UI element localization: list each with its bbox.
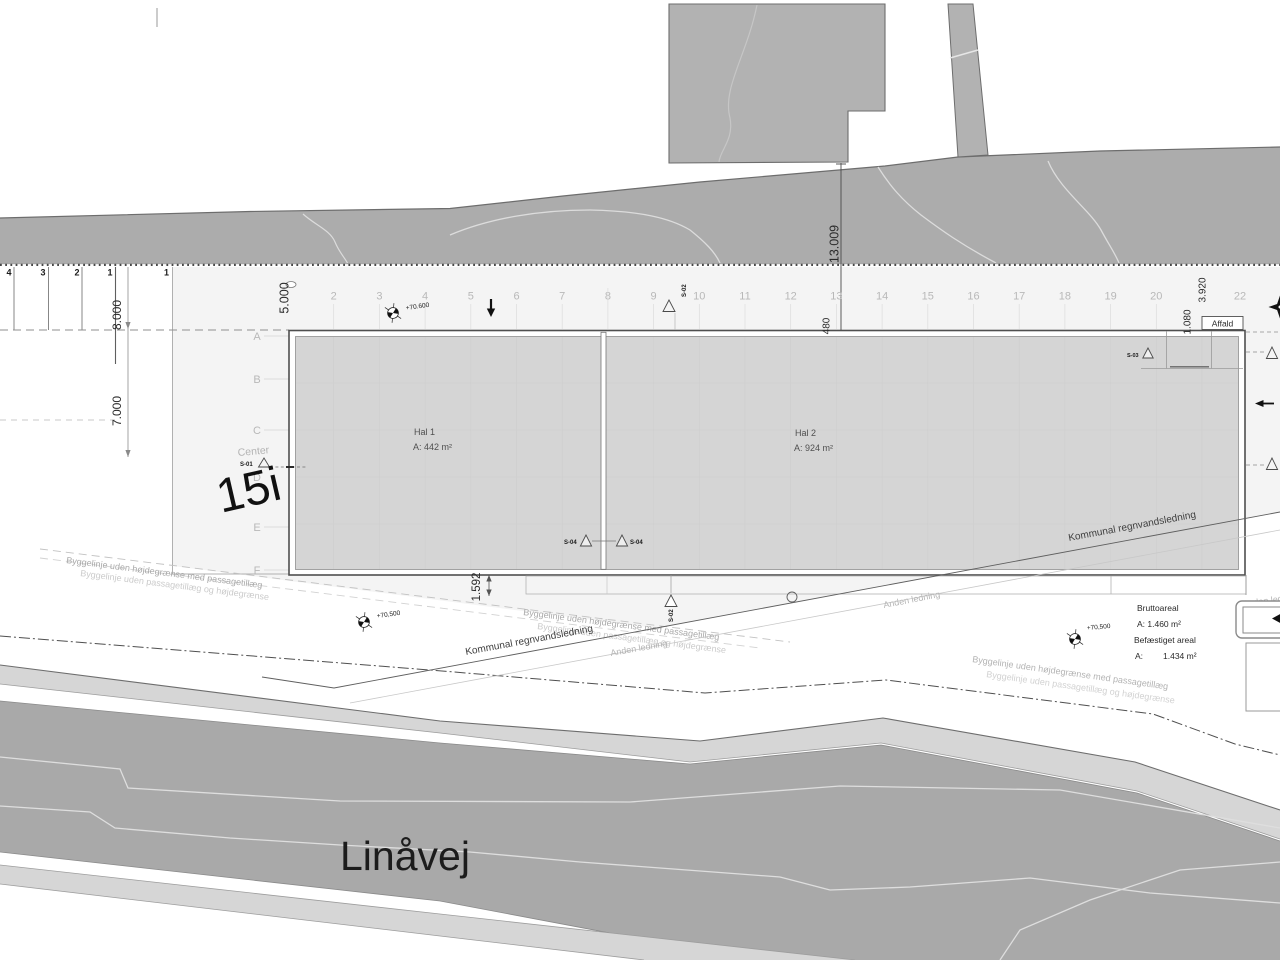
svg-text:15: 15: [922, 291, 934, 303]
svg-text:Befæstiget areal: Befæstiget areal: [1134, 635, 1196, 645]
svg-text:18: 18: [1059, 291, 1071, 303]
svg-text:8.000: 8.000: [110, 300, 124, 330]
svg-text:10: 10: [693, 291, 705, 303]
svg-text:11: 11: [739, 291, 750, 303]
svg-text:S-04: S-04: [564, 540, 577, 546]
svg-text:13: 13: [830, 291, 842, 303]
svg-text:B: B: [253, 374, 260, 386]
svg-text:13.009: 13.009: [827, 225, 841, 263]
svg-text:2: 2: [331, 291, 337, 303]
svg-text:A: A: [253, 331, 261, 343]
svg-text:S-04: S-04: [630, 540, 643, 546]
svg-text:1.080: 1.080: [1183, 309, 1194, 334]
svg-text:F: F: [254, 565, 261, 577]
svg-text:5: 5: [468, 291, 474, 303]
svg-text:22: 22: [1234, 291, 1246, 303]
svg-text:3: 3: [376, 291, 382, 303]
svg-text:6: 6: [513, 291, 519, 303]
svg-text:A: 1.460 m²: A: 1.460 m²: [1137, 619, 1181, 629]
svg-text:1: 1: [107, 268, 112, 278]
svg-text:3: 3: [40, 268, 45, 278]
svg-text:Hal 1: Hal 1: [414, 427, 435, 437]
svg-text:480: 480: [822, 317, 833, 334]
svg-text:20: 20: [1150, 291, 1162, 303]
svg-text:7: 7: [559, 291, 565, 303]
svg-text:C: C: [253, 425, 261, 437]
svg-text:17: 17: [1013, 291, 1025, 303]
svg-text:4: 4: [6, 268, 11, 278]
svg-text:7.000: 7.000: [110, 396, 124, 426]
svg-text:1: 1: [164, 268, 169, 278]
svg-text:Bruttoareal: Bruttoareal: [1137, 603, 1179, 613]
svg-text:E: E: [253, 522, 260, 534]
svg-text:4: 4: [422, 291, 428, 303]
svg-text:3.920: 3.920: [1198, 277, 1209, 302]
svg-text:14: 14: [876, 291, 888, 303]
svg-text:1.592: 1.592: [471, 573, 483, 602]
svg-text:9: 9: [651, 291, 657, 303]
svg-text:12: 12: [785, 291, 797, 303]
svg-text:S-02: S-02: [682, 284, 688, 297]
svg-text:Hal 2: Hal 2: [795, 428, 816, 438]
svg-text:16: 16: [967, 291, 979, 303]
svg-text:Linåvej: Linåvej: [340, 833, 470, 879]
svg-text:A: 924 m²: A: 924 m²: [794, 443, 833, 453]
svg-text:S-03: S-03: [1127, 353, 1139, 359]
svg-text:19: 19: [1104, 291, 1116, 303]
svg-text:5.000: 5.000: [277, 282, 291, 313]
svg-text:2: 2: [74, 268, 79, 278]
svg-text:Affald: Affald: [1212, 319, 1234, 329]
svg-text:S-02: S-02: [669, 609, 675, 622]
svg-text:A: 442 m²: A: 442 m²: [413, 442, 452, 452]
